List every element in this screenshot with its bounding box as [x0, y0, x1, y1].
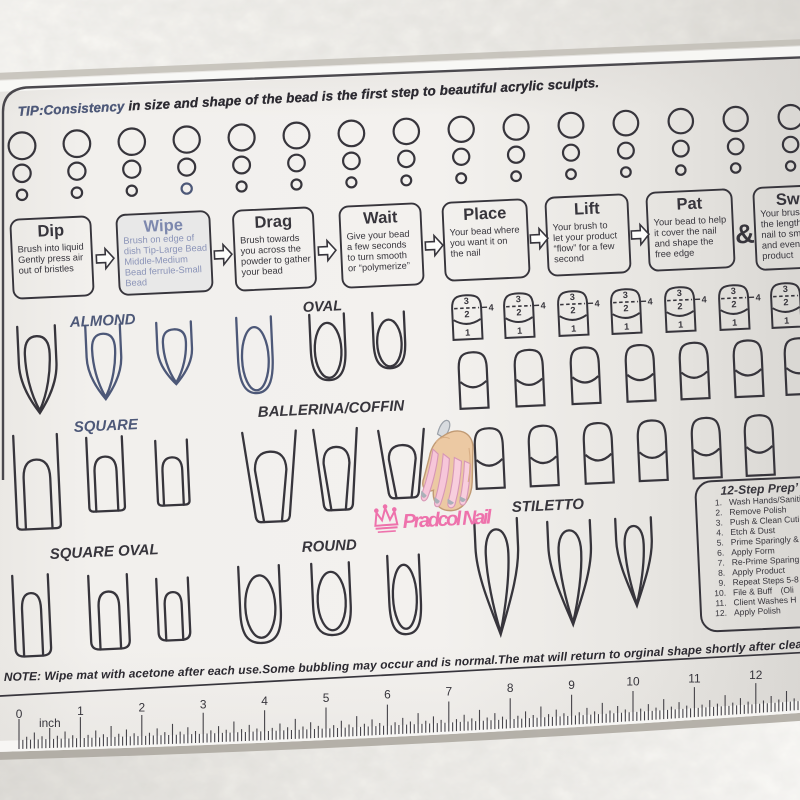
svg-text:2: 2	[677, 301, 683, 311]
svg-text:11.: 11.	[715, 598, 727, 608]
svg-text:2: 2	[623, 303, 629, 313]
svg-text:Dip: Dip	[37, 221, 64, 240]
svg-text:2: 2	[516, 307, 522, 317]
svg-text:6.: 6.	[717, 548, 725, 558]
svg-text:3: 3	[677, 288, 683, 298]
svg-text:the nail: the nail	[450, 247, 480, 258]
svg-text:3: 3	[783, 284, 789, 294]
svg-text:ROUND: ROUND	[301, 537, 357, 556]
svg-text:3: 3	[464, 296, 470, 306]
svg-text:2: 2	[731, 299, 737, 309]
svg-text:4: 4	[701, 294, 706, 304]
svg-text:10: 10	[626, 675, 640, 689]
svg-text:10.: 10.	[714, 588, 726, 599]
svg-text:4: 4	[540, 300, 545, 310]
svg-text:1: 1	[678, 320, 684, 330]
svg-text:3: 3	[623, 290, 629, 300]
svg-text:Wait: Wait	[363, 208, 399, 228]
svg-text:4: 4	[594, 298, 599, 308]
svg-text:Pradcol Nail: Pradcol Nail	[402, 506, 492, 533]
svg-text:4.: 4.	[716, 527, 724, 537]
svg-text:your bead: your bead	[241, 265, 283, 277]
svg-text:11: 11	[688, 671, 701, 685]
svg-text:1: 1	[77, 704, 84, 718]
svg-text:3: 3	[731, 286, 737, 296]
svg-text:2: 2	[570, 305, 576, 315]
svg-text:2: 2	[138, 701, 145, 715]
svg-text:12: 12	[749, 668, 763, 682]
svg-text:1: 1	[732, 318, 738, 328]
svg-text:3: 3	[570, 292, 576, 302]
svg-text:Apply Polish: Apply Polish	[734, 605, 781, 617]
svg-text:9: 9	[568, 678, 575, 692]
svg-text:0: 0	[16, 707, 23, 721]
svg-text:Swipe: Swipe	[776, 189, 800, 209]
svg-text:7.: 7.	[717, 558, 725, 568]
svg-text:3.: 3.	[716, 517, 724, 527]
svg-text:second: second	[554, 253, 584, 264]
svg-text:1: 1	[624, 322, 630, 332]
svg-text:1: 1	[784, 316, 790, 326]
svg-text:1: 1	[517, 326, 523, 336]
svg-text:4: 4	[488, 302, 493, 312]
svg-text:7: 7	[445, 684, 452, 698]
svg-text:4: 4	[261, 694, 268, 708]
svg-text:1.: 1.	[715, 497, 723, 507]
svg-text:3: 3	[200, 697, 207, 711]
svg-text:1: 1	[465, 328, 471, 338]
svg-text:2.: 2.	[715, 507, 723, 517]
svg-text:8.: 8.	[718, 568, 726, 578]
svg-text:12.: 12.	[715, 608, 727, 619]
svg-text:inch: inch	[39, 716, 61, 730]
svg-text:SQUARE: SQUARE	[73, 416, 139, 436]
svg-text:Place: Place	[463, 204, 507, 224]
svg-text:4: 4	[647, 296, 652, 306]
svg-text:2: 2	[783, 297, 789, 307]
svg-text:2: 2	[464, 309, 470, 319]
svg-text:Drag: Drag	[254, 212, 292, 232]
svg-text:4: 4	[755, 292, 760, 302]
svg-text:and even o: and even o	[762, 239, 800, 251]
svg-text:Pat: Pat	[676, 194, 703, 213]
svg-text:Lift: Lift	[574, 199, 601, 218]
svg-text:5.: 5.	[716, 537, 724, 547]
svg-text:&: &	[734, 219, 755, 250]
svg-text:STILETTO: STILETTO	[511, 496, 584, 516]
svg-text:OVAL: OVAL	[302, 298, 342, 316]
svg-text:ALMOND: ALMOND	[68, 311, 136, 331]
svg-text:6: 6	[384, 688, 391, 702]
svg-text:9.: 9.	[718, 578, 726, 588]
svg-text:3: 3	[516, 294, 522, 304]
svg-text:5: 5	[323, 691, 330, 705]
svg-text:8: 8	[507, 681, 514, 695]
svg-text:free edge: free edge	[655, 248, 695, 260]
svg-text:product: product	[762, 250, 794, 261]
svg-text:Bead: Bead	[125, 277, 147, 288]
svg-text:1: 1	[571, 324, 577, 334]
